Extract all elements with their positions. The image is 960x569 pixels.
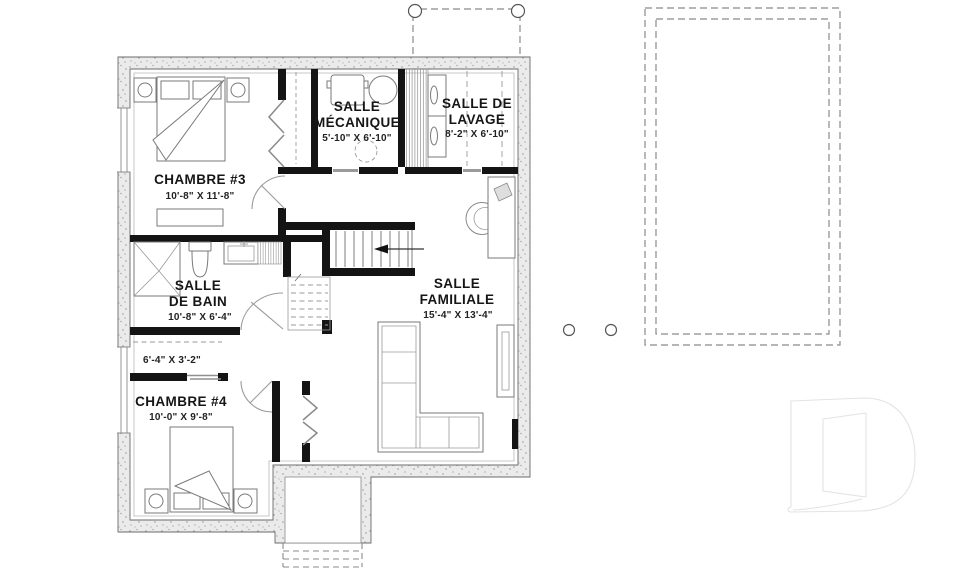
lamp-icon <box>149 494 163 508</box>
toilet-icon <box>189 242 211 277</box>
porch-posts <box>564 325 617 336</box>
room-name: SALLE DE <box>442 96 512 111</box>
desk-area <box>466 177 515 258</box>
linen-cabinet-icon <box>258 242 281 264</box>
room-label-rangement: 6'-4" X 3'-2" <box>143 355 201 366</box>
dryer-icon <box>428 116 446 157</box>
deck-post-icon <box>512 5 525 18</box>
dresser-icon <box>157 209 223 226</box>
lamp-icon <box>238 494 252 508</box>
room-name: LAVAGE <box>449 112 506 127</box>
chambre-4-furniture <box>145 427 257 513</box>
room-name: CHAMBRE #4 <box>135 394 227 409</box>
familiale-furniture <box>378 322 514 452</box>
room-dims: 10'-0" X 9'-8" <box>149 412 213 423</box>
lamp-icon <box>138 83 152 97</box>
room-dims: 10'-8" X 11'-8" <box>166 191 235 202</box>
bed-icon <box>170 427 233 512</box>
room-name: DE BAIN <box>169 294 227 309</box>
bifold-closet-door-under-stairs <box>303 396 317 445</box>
lamp-icon <box>231 83 245 97</box>
bed-icon <box>153 77 225 161</box>
room-label-salle-de-lavage: SALLE DE LAVAGE 8'-2" X 6'-10" <box>442 96 512 140</box>
room-name: CHAMBRE #3 <box>154 172 246 187</box>
room-label-salle-de-bain: SALLE DE BAIN 10'-8" X 6'-4" <box>168 278 232 323</box>
room-name: SALLE <box>175 278 221 293</box>
basement-window <box>117 108 131 172</box>
bifold-closet-door-chambre-3 <box>269 100 284 167</box>
deck-post-icon <box>409 5 422 18</box>
window-well <box>285 477 361 543</box>
chambre-3-furniture <box>134 77 249 226</box>
deck-dashed-outline <box>409 5 525 58</box>
door-swing-chambre-4 <box>241 381 272 412</box>
room-name: FAMILIALE <box>420 292 495 307</box>
exterior-steps <box>283 543 362 567</box>
garage-dashed-outline <box>645 8 840 345</box>
hatched-chase <box>407 69 429 167</box>
tv-console-icon <box>497 325 514 397</box>
room-label-salle-familiale: SALLE FAMILIALE 15'-4" X 13'-4" <box>420 276 495 321</box>
sectional-sofa-icon <box>378 322 483 452</box>
room-label-chambre-3: CHAMBRE #3 10'-8" X 11'-8" <box>154 172 246 202</box>
room-dims: 10'-8" X 6'-4" <box>168 312 232 323</box>
sliding-closet-door <box>187 376 221 380</box>
staircase <box>288 230 424 330</box>
floor-plan-canvas: CHAMBRE #3 10'-8" X 11'-8" SALLE MÉCANIQ… <box>0 0 960 569</box>
room-name: SALLE <box>334 99 380 114</box>
room-dims: 6'-4" X 3'-2" <box>143 355 201 366</box>
door-swing-salle-de-bain <box>241 293 283 330</box>
room-label-salle-mecanique: SALLE MÉCANIQUE 5'-10" X 6'-10" <box>314 99 400 144</box>
porch-post-icon <box>606 325 617 336</box>
brand-d-logo-icon <box>788 398 915 512</box>
porch-post-icon <box>564 325 575 336</box>
floor-plan-page: CHAMBRE #3 10'-8" X 11'-8" SALLE MÉCANIQ… <box>0 0 960 569</box>
room-name: MÉCANIQUE <box>314 115 400 130</box>
sink-vanity-icon <box>224 241 258 264</box>
door-swing-chambre-3 <box>252 176 285 209</box>
room-name: SALLE <box>434 276 480 291</box>
room-dims: 15'-4" X 13'-4" <box>423 310 493 321</box>
room-label-chambre-4: CHAMBRE #4 10'-0" X 9'-8" <box>135 394 227 423</box>
room-dims: 5'-10" X 6'-10" <box>322 133 392 144</box>
room-dims: 8'-2" X 6'-10" <box>445 129 509 140</box>
corner-shower-icon <box>134 242 180 296</box>
basement-window <box>117 347 131 433</box>
